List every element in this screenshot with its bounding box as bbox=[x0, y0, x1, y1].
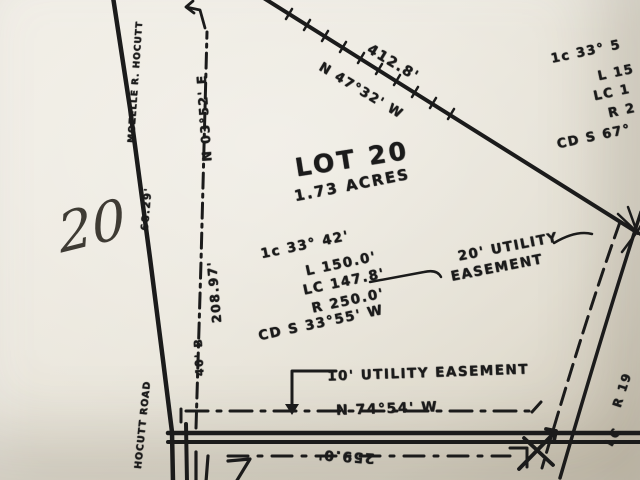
easement-leader-line bbox=[554, 233, 592, 243]
north-arrow bbox=[186, 1, 205, 28]
plat-photo: 20 LOT 20 1.73 ACRES 412.8' N 47°32' W N… bbox=[0, 0, 640, 480]
south-dashed-right-hook bbox=[532, 402, 541, 412]
cul-de-sac-curve-solid bbox=[560, 212, 640, 478]
setback-label: 40' B bbox=[192, 337, 207, 376]
